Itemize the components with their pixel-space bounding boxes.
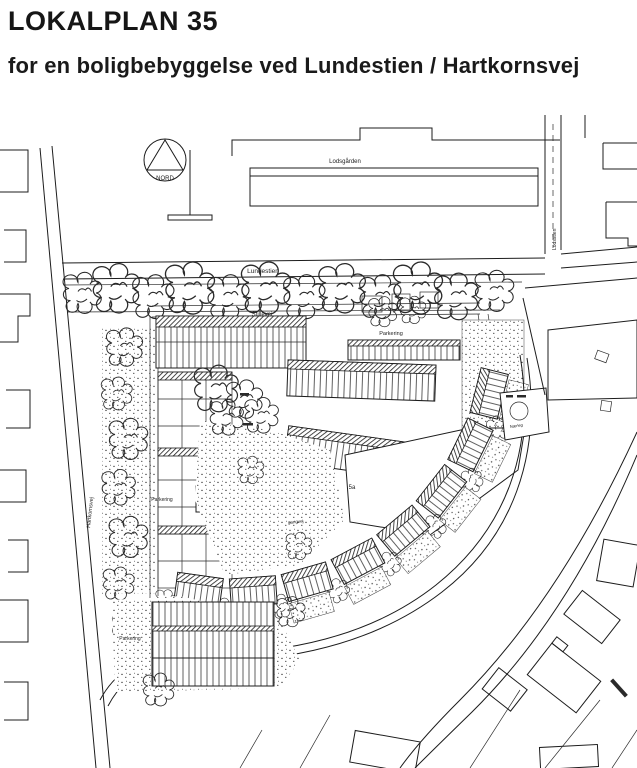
road-lundestien — [62, 247, 637, 279]
site-plan-map: Hartkornsvej NORD Lodsgården Lodsstien — [0, 0, 637, 768]
terrace-north — [156, 316, 306, 368]
terrace-row-middle — [287, 360, 436, 401]
place-label-parkering-south: Parkering — [119, 636, 141, 642]
place-label-lodsgaarden: Lodsgården — [329, 158, 361, 165]
parking-south — [152, 602, 274, 686]
compass-label: NORD — [156, 176, 174, 182]
road-hartkornsvej — [40, 146, 110, 768]
street-label-hartkornsvej: Hartkornsvej — [86, 497, 95, 528]
existing-houses-east — [585, 115, 637, 246]
parcel-label-5a: 5a — [349, 485, 356, 491]
lodsgaarden-block — [168, 128, 560, 220]
lokalplan-document-page: LOKALPLAN 35 for en boligbebyggelse ved … — [0, 0, 637, 768]
playground-naerleg — [500, 388, 549, 440]
street-label-lundestien: Lundestien — [247, 268, 279, 275]
place-label-parkering-north: Parkering — [379, 331, 403, 337]
existing-houses-southeast — [350, 539, 637, 768]
existing-houses-west — [0, 150, 30, 720]
hedge-band-north — [63, 262, 522, 320]
north-compass: NORD — [144, 139, 186, 182]
street-label-lodsstien: Lodsstien — [552, 228, 558, 250]
place-label-parkering-west: Parkering — [151, 497, 173, 503]
